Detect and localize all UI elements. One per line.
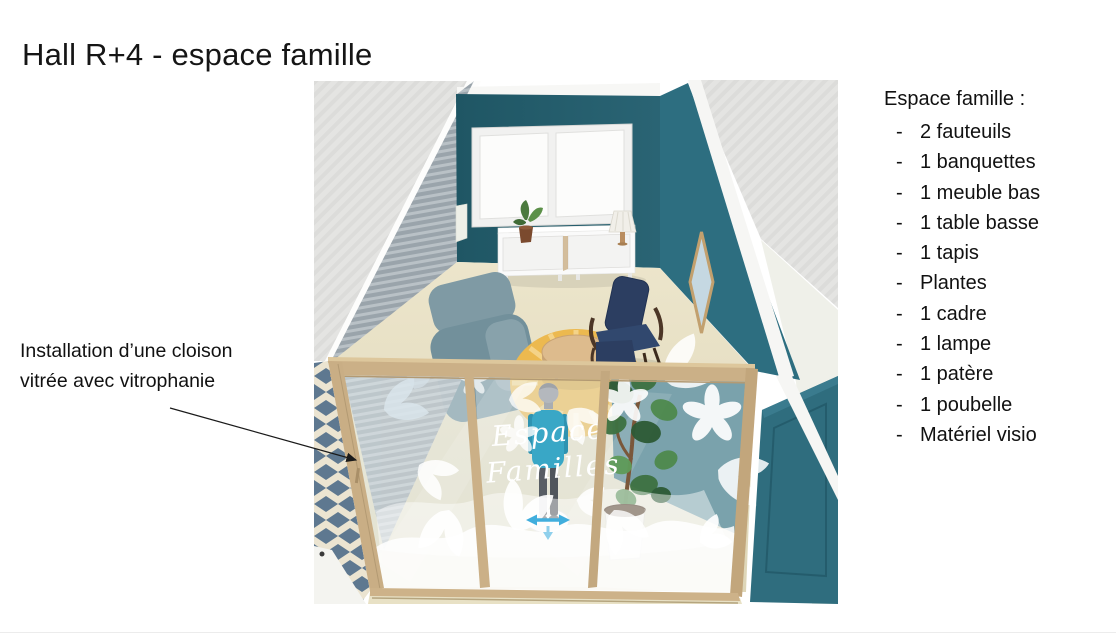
legend-item: -1 banquettes [884, 147, 1040, 177]
bullet-dash: - [896, 420, 920, 450]
page-title: Hall R+4 - espace famille [22, 37, 372, 73]
radiator [456, 204, 467, 242]
presentation-slide: Hall R+4 - espace famille [0, 0, 1116, 633]
legend-heading: Espace famille : [884, 84, 1040, 114]
legend-item: -1 table basse [884, 208, 1040, 238]
bullet-dash: - [896, 147, 920, 177]
bullet-dash: - [896, 117, 920, 147]
bullet-dash: - [896, 208, 920, 238]
legend-list: -2 fauteuils -1 banquettes -1 meuble bas… [884, 117, 1040, 450]
wall-socket [320, 552, 325, 557]
legend-item: -1 tapis [884, 238, 1040, 268]
bullet-dash: - [896, 238, 920, 268]
legend-item: -Plantes [884, 268, 1040, 298]
legend-item: -1 patère [884, 359, 1040, 389]
legend-item: -1 lampe [884, 329, 1040, 359]
legend-panel: Espace famille : -2 fauteuils -1 banquet… [884, 84, 1040, 450]
window [472, 124, 632, 227]
legend-item: -1 poubelle [884, 390, 1040, 420]
room-render-3d: Espace Familles [314, 80, 838, 604]
bullet-dash: - [896, 329, 920, 359]
legend-item: -1 cadre [884, 299, 1040, 329]
legend-item: -Matériel visio [884, 420, 1040, 450]
legend-item: -2 fauteuils [884, 117, 1040, 147]
annotation-note: Installation d’une cloison vitrée avec v… [20, 336, 234, 396]
bullet-dash: - [896, 268, 920, 298]
bullet-dash: - [896, 178, 920, 208]
legend-item: -1 meuble bas [884, 178, 1040, 208]
bullet-dash: - [896, 299, 920, 329]
bullet-dash: - [896, 359, 920, 389]
bullet-dash: - [896, 390, 920, 420]
annotation-arrow [158, 398, 370, 470]
